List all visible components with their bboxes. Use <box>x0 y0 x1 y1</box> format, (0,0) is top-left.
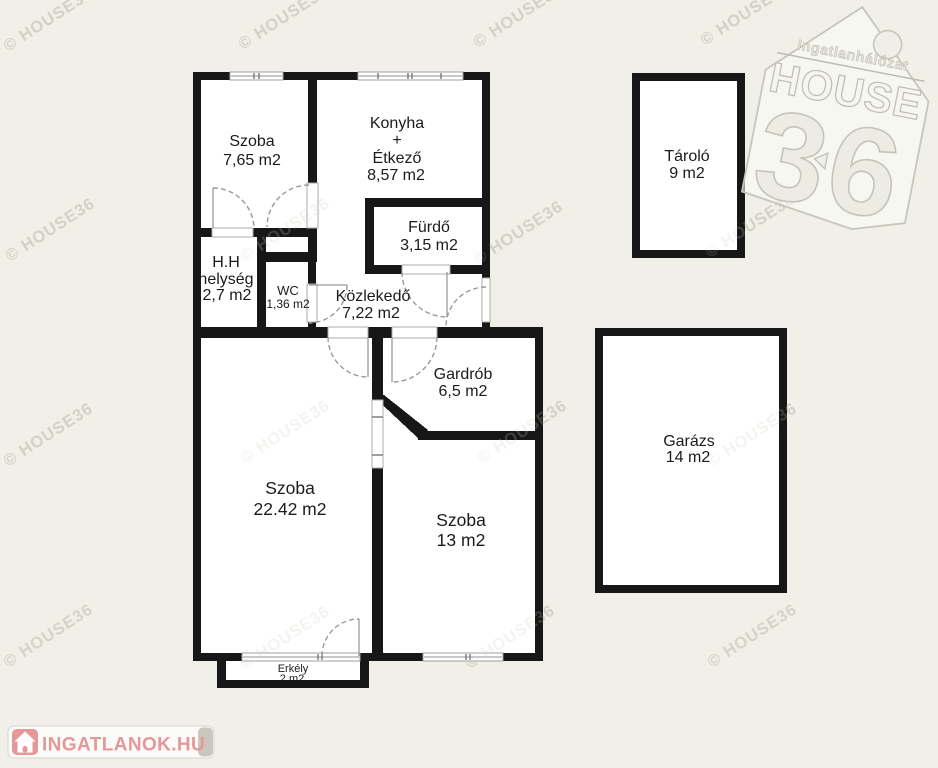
room-label-gardrob: Gardrób <box>434 366 493 383</box>
room-area-tarolo: 9 m2 <box>669 165 705 182</box>
floor-plan-image: © HOUSE36 © HOUSE36 © HOUSE36 © HOUSE36 … <box>0 0 938 768</box>
room-area-szoba1: 7,65 m2 <box>223 152 281 169</box>
door-opening-szoba-nagy <box>328 327 368 338</box>
room-label-konyha-plus: + <box>392 132 401 149</box>
room-label-garazs: Garázs <box>663 433 715 450</box>
room-area-wc: 1,36 m2 <box>266 297 310 311</box>
wall-balcony-right <box>360 661 369 688</box>
window-konyha <box>358 72 463 80</box>
room-area-gardrob: 6,5 m2 <box>439 383 488 400</box>
door-opening-szoba-kis <box>372 400 383 468</box>
room-label-tarolo: Tároló <box>664 148 709 165</box>
room-area-hh: 2,7 m2 <box>203 287 252 304</box>
room-label-szoba-nagy: Szoba <box>265 478 315 498</box>
door-opening-gardrob <box>392 327 437 338</box>
floor-plan-svg: © HOUSE36 © HOUSE36 © HOUSE36 © HOUSE36 … <box>0 0 938 768</box>
room-label-wc: WC <box>277 283 299 298</box>
wall-furdo-top <box>365 198 490 207</box>
room-label-szoba-kis: Szoba <box>436 510 486 530</box>
room-label-hh2: helység <box>198 271 253 288</box>
wall-szoba-divider <box>372 327 383 661</box>
ingatlanok-logo: INGATLANOK.HU <box>8 726 214 758</box>
footer-logo-text: INGATLANOK.HU <box>42 735 205 756</box>
brand-number-text: 36 <box>744 83 915 248</box>
room-label-szoba1: Szoba <box>229 133 274 150</box>
window-szoba1 <box>230 72 283 80</box>
door-opening-furdo <box>402 265 450 274</box>
room-area-furdo: 3,15 m2 <box>400 237 458 254</box>
room-area-szoba-kis: 13 m2 <box>437 530 486 550</box>
room-area-garazs: 14 m2 <box>666 449 711 466</box>
room-label-etkezo: Étkező <box>373 148 422 167</box>
wall-left <box>193 72 201 661</box>
room-area-konyha: 8,57 m2 <box>367 167 425 184</box>
room-label-hh: H.H <box>212 254 240 271</box>
room-area-kozlekedo: 7,22 m2 <box>342 305 400 322</box>
wall-furdo-left <box>365 198 374 274</box>
room-label-furdo: Fürdő <box>408 219 450 236</box>
room-label-kozlekedo: Közlekedő <box>336 288 411 305</box>
room-area-erkely: 2 m2 <box>280 673 304 685</box>
door-opening-hh <box>212 228 253 237</box>
room-label-konyha: Konyha <box>370 115 424 132</box>
door-opening-entry <box>482 278 490 322</box>
room-area-szoba-nagy: 22.42 m2 <box>254 499 327 519</box>
